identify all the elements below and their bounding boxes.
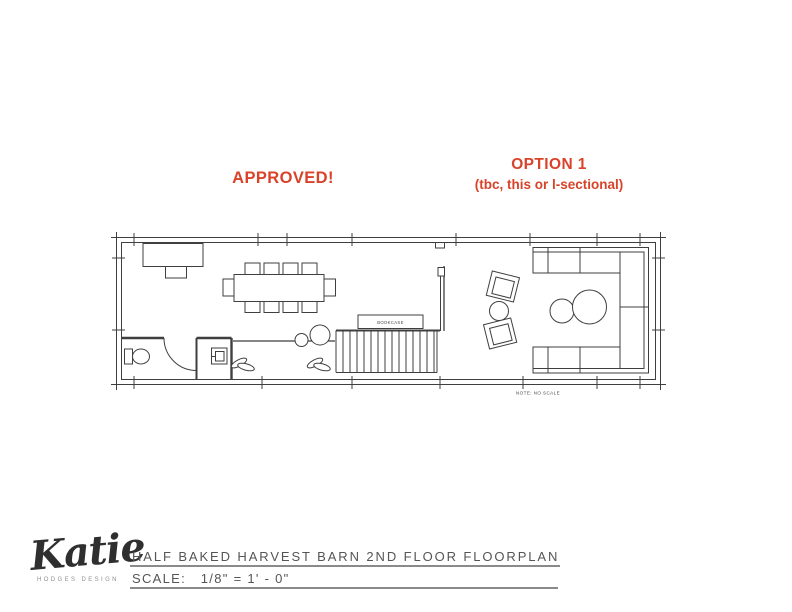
accent-chair [486,271,519,302]
stair-railing [438,266,445,331]
drawing-scale: SCALE: 1/8" = 1' - 0" [132,571,290,586]
sink [212,348,228,364]
option-subtitle: (tbc, this or l-sectional) [438,177,660,192]
plant [306,356,331,372]
bookcase-label: BOOKCASE [377,320,404,325]
bathroom [122,338,232,380]
desk [143,244,203,279]
ottomans [295,325,330,347]
approved-annotation: APPROVED! [183,169,383,188]
floor-plan-drawing: BOOKCASE [105,228,680,400]
dining-table [234,275,324,302]
designer-logo: Katie [28,523,146,580]
option-title: OPTION 1 [438,156,660,174]
plan-note: NOTE: NO SCALE [516,391,560,396]
designer-logo-tagline: HODGES DESIGN [37,577,119,583]
side-table [490,302,509,321]
toilet [125,349,150,364]
door-swing [164,338,197,371]
accent-chair [484,318,517,349]
desk-chair [166,267,187,279]
option-annotation: OPTION 1 (tbc, this or l-sectional) [438,156,660,192]
presentation-page: APPROVED! OPTION 1 (tbc, this or l-secti… [0,0,792,612]
coffee-tables [550,290,607,324]
title-rule [130,565,560,567]
drawing-title: HALF BAKED HARVEST BARN 2ND FLOOR FLOORP… [132,549,559,564]
plant [230,356,255,372]
bookcase: BOOKCASE [358,315,423,329]
staircase [336,331,440,373]
scale-rule [130,587,558,589]
wall-stub [436,243,445,249]
dining-set [223,263,336,313]
